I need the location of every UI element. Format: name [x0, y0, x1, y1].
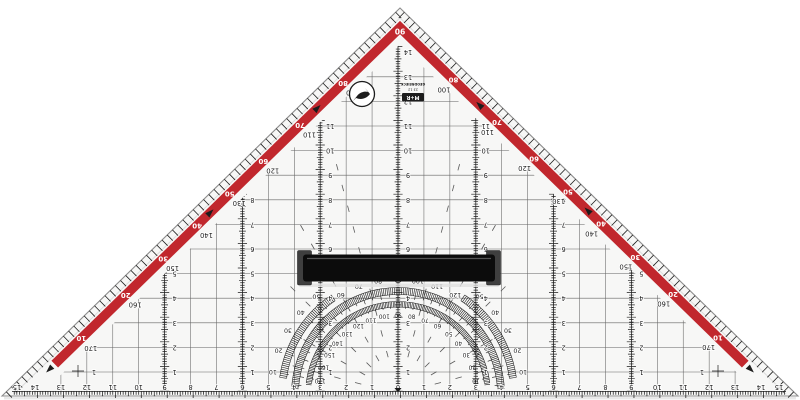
edge-degree-black: 160 [657, 300, 670, 308]
grid-number: 2 [250, 343, 254, 351]
edge-degree-black: 130 [552, 197, 565, 205]
cm-scale-number: 8 [603, 383, 607, 391]
edge-degree-black: 120 [266, 166, 279, 174]
protractor-inner-label: 50 [445, 330, 453, 336]
cm-scale-number: 10 [134, 383, 143, 391]
cm-scale-number: 2 [344, 383, 348, 391]
edge-degree-white: 30 [630, 253, 640, 261]
grid-number: 11 [326, 122, 334, 130]
cm-scale-number: 8 [188, 383, 192, 391]
edge-degree-white: 70 [295, 121, 305, 129]
cm-scale-number: 4 [292, 383, 296, 391]
cm-scale-number: 6 [551, 383, 555, 391]
cm-scale-number: 15 [13, 383, 22, 391]
cm-scale-number: 3 [474, 383, 478, 391]
protractor-inner-label: 110 [365, 316, 376, 322]
grid-number: 7 [328, 220, 332, 228]
protractor-inner-label: 30 [462, 351, 470, 357]
edge-degree-black: 110 [481, 128, 494, 136]
grid-number: 4 [561, 294, 565, 302]
grid-number: 3 [484, 319, 488, 327]
protractor-inner-label: 100 [378, 313, 389, 319]
grid-number: 10 [326, 147, 334, 155]
cm-scale-number: 7 [214, 383, 218, 391]
grid-number: 1 [639, 368, 643, 376]
grid-number: 9 [484, 171, 488, 179]
cm-scale-number: 6 [240, 383, 244, 391]
protractor-side-label: 20 [275, 347, 283, 354]
grid-number: 8 [250, 196, 254, 204]
edge-degree-black: 100 [438, 85, 451, 93]
protractor-side-label: 20 [513, 347, 521, 354]
grid-number: 5 [250, 270, 254, 278]
cm-scale-number: 12 [705, 383, 714, 391]
grid-number: 10 [482, 147, 490, 155]
cm-scale-number: 1 [370, 383, 374, 391]
cm-scale-number: 11 [679, 383, 688, 391]
grid-number: 7 [484, 220, 488, 228]
edge-degree-white: 80 [338, 79, 348, 87]
grid-number: 7 [406, 220, 410, 228]
protractor-outer-label: 60 [337, 291, 345, 298]
protractor-outer-label: 120 [449, 291, 461, 298]
grid-number: 2 [328, 343, 332, 351]
grid-number: 4 [484, 294, 488, 302]
grid-number: 6 [250, 245, 254, 253]
protractor-side-label: 50 [476, 293, 484, 300]
grid-number: 6 [406, 245, 410, 253]
edge-degree-white: 50 [225, 190, 235, 198]
edge-degree-black: 140 [200, 231, 213, 239]
cm-scale-number: 5 [525, 383, 529, 391]
grid-number: 4 [173, 294, 177, 302]
edge-degree-black: 170 [84, 344, 97, 352]
edge-degree-white: 50 [563, 187, 573, 195]
grid-number: 14 [404, 48, 412, 56]
grid-number: 7 [250, 220, 254, 228]
protractor-inner-label: 140 [332, 340, 343, 346]
grid-number: 9 [406, 171, 410, 179]
cm-scale-number: 14 [31, 383, 40, 391]
edge-degree-black: 110 [303, 131, 316, 139]
cm-scale-number: 9 [162, 383, 166, 391]
cm-scale-number: 4 [500, 383, 504, 391]
grid-number: 6 [561, 245, 565, 253]
grid-number: 3 [406, 319, 410, 327]
protractor-side-label: 30 [284, 327, 292, 334]
grid-number: 3 [250, 319, 254, 327]
protractor-inner-label: 120 [353, 322, 364, 328]
edge-degree-black: 130 [233, 199, 246, 207]
cm-scale-number: 10 [653, 383, 662, 391]
grid-number: 2 [406, 343, 410, 351]
corner-mark-number: 1 [700, 368, 704, 376]
cm-scale-number: 5 [266, 383, 270, 391]
grid-number: 11 [404, 122, 412, 130]
cm-scale-number: 3 [318, 383, 322, 391]
edge-degree-black: 160 [129, 301, 142, 309]
protractor-side-label: 50 [312, 293, 320, 300]
protractor-inner-label: 80 [408, 313, 416, 319]
protractor-inner-label: 60 [434, 322, 442, 328]
protractor-side-label: 40 [297, 308, 305, 315]
grid-number: 1 [561, 368, 565, 376]
grid-number: 1 [250, 368, 254, 376]
grid-number: 4 [328, 294, 332, 302]
corner-mark-number: 1 [92, 368, 96, 376]
grid-number: 13 [404, 73, 412, 81]
grid-number: 4 [406, 294, 410, 302]
apex-degree-label: 90 [395, 27, 405, 36]
edge-degree-white: 40 [596, 220, 606, 228]
edge-degree-black: 140 [585, 229, 598, 237]
grid-number: 4 [250, 294, 254, 302]
grid-number: 3 [173, 319, 177, 327]
cm-scale-number: 15 [775, 383, 784, 391]
edge-degree-black: 150 [166, 264, 179, 272]
edge-degree-black: 170 [702, 343, 715, 351]
protractor-side-label: 10 [269, 368, 277, 375]
drop-shadow [4, 397, 796, 399]
edge-degree-white: 80 [448, 76, 458, 84]
grid-number: 1 [173, 368, 177, 376]
cm-scale-number: 11 [108, 383, 117, 391]
handle-shadow [299, 284, 499, 288]
set-square-photo: 1201101009080706010203040506070809010011… [0, 0, 800, 400]
edge-degree-white: 30 [158, 254, 168, 262]
cm-scale-number: 1 [422, 383, 426, 391]
cm-scale-number: 13 [731, 383, 740, 391]
grid-number: 6 [328, 245, 332, 253]
grid-number: 2 [561, 343, 565, 351]
grid-number: 8 [328, 196, 332, 204]
edge-degree-white: 60 [258, 157, 268, 165]
grid-number: 8 [406, 196, 410, 204]
cm-scale-number: 13 [57, 383, 66, 391]
grid-number: 3 [328, 319, 332, 327]
grid-number: 9 [328, 171, 332, 179]
cm-scale-number: 7 [577, 383, 581, 391]
grid-number: 1 [484, 368, 488, 376]
grid-number: 5 [561, 270, 565, 278]
protractor-inner-label: 70 [421, 316, 429, 322]
protractor-inner-label: 130 [341, 330, 352, 336]
protractor-side-label: 10 [519, 368, 527, 375]
edge-degree-white: 10 [76, 334, 86, 342]
grid-number: 3 [639, 319, 643, 327]
grid-number: 2 [639, 343, 643, 351]
protractor-side-label: 30 [504, 327, 512, 334]
grid-number: 10 [404, 147, 412, 155]
edge-degree-white: 60 [529, 154, 539, 162]
cm-scale-number: 2 [448, 383, 452, 391]
edge-degree-white: 20 [121, 291, 131, 299]
protractor-side-label: 40 [491, 308, 499, 315]
edge-degree-white: 20 [668, 290, 678, 298]
edge-degree-white: 10 [713, 334, 723, 342]
grid-number: 3 [561, 319, 565, 327]
brand-badge-text: M+R [406, 94, 419, 100]
logo-line1: GEODREIECK [400, 82, 425, 86]
edge-degree-white: 40 [192, 221, 202, 229]
grid-number: 2 [173, 343, 177, 351]
logo-line2: 23 12 [408, 88, 418, 92]
grid-number: 7 [561, 220, 565, 228]
set-square-image: 1201101009080706010203040506070809010011… [0, 0, 800, 400]
cm-scale-number: 14 [757, 383, 766, 391]
edge-degree-black: 120 [518, 164, 531, 172]
cm-scale-number: 12 [83, 383, 92, 391]
protractor-inner-label: 40 [455, 340, 463, 346]
cm-scale-number: 9 [629, 383, 633, 391]
grid-number: 8 [484, 196, 488, 204]
edge-degree-white: 70 [492, 118, 502, 126]
edge-degree-black: 150 [619, 263, 632, 271]
grid-number: 4 [639, 294, 643, 302]
grid-number: 1 [328, 368, 332, 376]
grid-number: 2 [484, 343, 488, 351]
grid-number: 1 [406, 368, 410, 376]
